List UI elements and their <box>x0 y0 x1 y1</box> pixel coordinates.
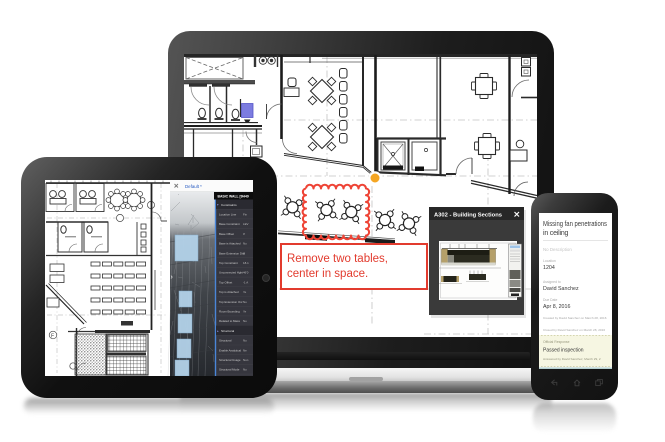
svg-text:Base Extension Dist: Base Extension Dist <box>219 251 245 255</box>
svg-text:1204: 1204 <box>543 265 555 271</box>
svg-text:Ye: Ye <box>243 290 247 294</box>
svg-text:Top Offset: Top Offset <box>219 280 232 284</box>
svg-text:Enable Analytical: Enable Analytical <box>219 348 241 352</box>
svg-text:Passed inspection: Passed inspection <box>543 348 584 354</box>
svg-text:David Sanchez: David Sanchez <box>543 286 579 292</box>
svg-text:-1 A: -1 A <box>243 280 248 284</box>
svg-text:Created by David Sanchez on Ma: Created by David Sanchez on March 28, 20… <box>543 316 607 320</box>
svg-text:Apr 8, 2016: Apr 8, 2016 <box>543 304 570 310</box>
svg-text:Ye: Ye <box>243 310 247 314</box>
svg-text:Structural Mode: Structural Mode <box>219 368 240 372</box>
svg-text:A302 - Building Sections: A302 - Building Sections <box>434 213 502 219</box>
svg-text:No: No <box>243 368 247 372</box>
svg-text:Top Constraint: Top Constraint <box>219 261 238 265</box>
svg-text:No: No <box>243 319 247 323</box>
svg-text:No: No <box>243 339 247 343</box>
svg-text:Remove two tables,: Remove two tables, <box>287 253 388 265</box>
svg-text:46'0: 46'0 <box>243 271 249 275</box>
svg-text:Top is Attached: Top is Attached <box>219 290 239 294</box>
svg-text:Location: Location <box>543 259 556 263</box>
svg-text:LEV: LEV <box>243 222 249 226</box>
svg-text:Structural Usage: Structural Usage <box>219 358 241 362</box>
svg-text:Official Response: Official Response <box>543 340 570 344</box>
svg-text:Related to Mass: Related to Mass <box>219 319 240 323</box>
svg-text:in ceiling: in ceiling <box>543 230 569 237</box>
svg-text:Base is Attached: Base is Attached <box>219 242 241 246</box>
svg-text:Base Offset: Base Offset <box>219 232 234 236</box>
svg-text:Base Constraint: Base Constraint <box>219 222 240 226</box>
svg-text:center in space.: center in space. <box>287 268 368 280</box>
svg-text:BASIC WALL [9H49: BASIC WALL [9H49 <box>218 194 249 198</box>
svg-text:Missing fan penetrations: Missing fan penetrations <box>543 221 607 228</box>
svg-text:Assigned to: Assigned to <box>543 280 561 284</box>
svg-text:Due Date: Due Date <box>543 298 557 302</box>
svg-text:Location Line: Location Line <box>219 213 237 217</box>
svg-text:Fin: Fin <box>243 213 247 217</box>
svg-text:Ne: Ne <box>243 348 247 352</box>
svg-text:No Description: No Description <box>543 247 572 252</box>
svg-text:No: No <box>243 242 247 246</box>
svg-text:Closed by David Sanchez on Mar: Closed by David Sanchez on March 28, 201… <box>543 328 605 332</box>
svg-text:Structural: Structural <box>219 339 232 343</box>
svg-text:Constraints: Constraints <box>221 203 237 207</box>
svg-text:Structural: Structural <box>221 329 235 333</box>
svg-text:18-1: 18-1 <box>243 261 249 265</box>
svg-text:Default *: Default * <box>185 184 202 189</box>
svg-text:Answered by David Sanchez, Mar: Answered by David Sanchez, March 29, 2 <box>543 357 601 361</box>
svg-text:Room Bounding: Room Bounding <box>219 310 240 314</box>
svg-text:Unconnected Hght: Unconnected Hght <box>219 271 243 275</box>
svg-text:Top Extension Ovr: Top Extension Ovr <box>219 300 243 304</box>
svg-text:Non: Non <box>243 358 249 362</box>
svg-text:No: No <box>243 300 247 304</box>
svg-text:F: F <box>51 334 54 340</box>
